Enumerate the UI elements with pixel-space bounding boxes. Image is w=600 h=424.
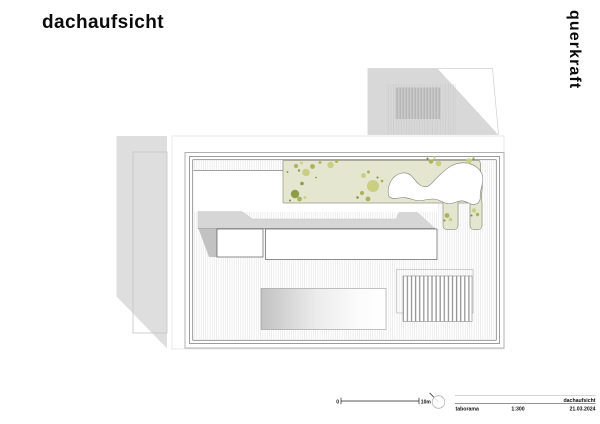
north-arrow-icon: [430, 393, 445, 409]
drawing-date: 21.03.2024: [570, 406, 596, 412]
drawing-scale: 1:300: [511, 406, 524, 412]
scale-bar: 0 10m: [336, 398, 431, 406]
roof-structure-long: [266, 229, 438, 260]
drawing-name: dachaufsicht: [564, 398, 596, 404]
project-name: taborama: [456, 406, 479, 412]
title-block: dachaufsicht taborama 1:300 21.03.2024: [455, 396, 596, 413]
scale-zero-label: 0: [336, 399, 339, 405]
solar-panels: [397, 270, 474, 322]
terrace-area: [194, 171, 284, 213]
roof-structure-small: [217, 229, 263, 257]
roof-plan-canvas: 0 10m dachaufsicht taborama 1:300 21.03.…: [0, 0, 600, 424]
neighbor-building-left: [117, 136, 168, 349]
main-roof-plan: [185, 153, 504, 349]
scale-ten-label: 10m: [421, 399, 432, 405]
neighbor-building-top: [368, 69, 499, 135]
skylight: [261, 289, 386, 330]
